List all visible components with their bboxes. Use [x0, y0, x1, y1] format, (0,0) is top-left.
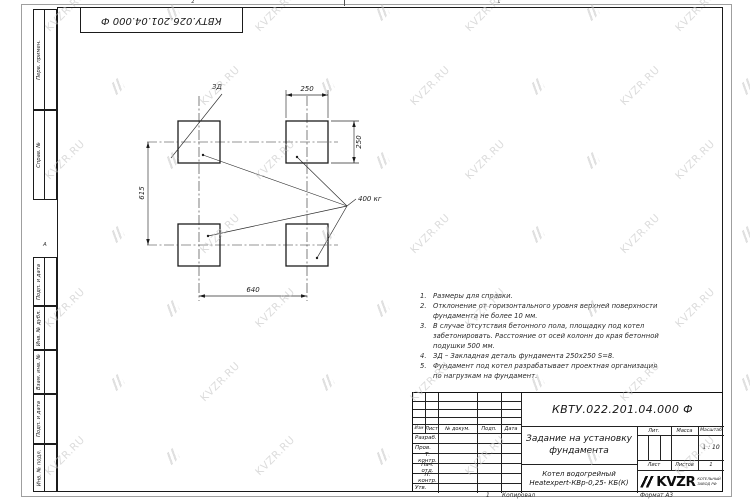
title-block-sig-row: Н. контр.: [413, 473, 440, 483]
dim-top-250: 250: [300, 85, 314, 93]
title-block-col-header: Лист: [425, 424, 438, 433]
note-number: 3.: [420, 321, 433, 351]
footer-copied: Копировал: [502, 493, 535, 499]
note-item: 5.Фундамент под котел разрабатывает прое…: [420, 361, 670, 381]
note-item: 3.В случае отсутствия бетонного пола, пл…: [420, 321, 670, 351]
title-block-doc-number: КВТУ.022.201.04.000 Ф: [521, 393, 724, 426]
scale-header: Масштаб: [698, 426, 724, 435]
note-number: 2.: [420, 301, 433, 321]
drawing-sheet: 2 1 А КВТУ.026.201.04.000 Ф Перв. примен…: [0, 0, 750, 500]
sheets-value: 1: [698, 460, 724, 470]
title-block-line: [660, 435, 661, 460]
title-block-line: [671, 426, 672, 470]
dim-left-615: 615: [138, 186, 146, 200]
title-block-line: [521, 393, 522, 493]
note-text: В случае отсутствия бетонного пола, площ…: [433, 321, 663, 351]
lit-header: Лит.: [637, 426, 671, 435]
scale-value: 1 : 10: [698, 435, 724, 460]
footer-format: Формат А3: [640, 493, 673, 499]
note-number: 4.: [420, 351, 433, 361]
title-block-line: [637, 470, 724, 471]
note-item: 1.Размеры для справки.: [420, 291, 670, 301]
note-item: 4.ЗД – Закладная деталь фундамента 250х2…: [420, 351, 670, 361]
leaders: ЗД 400 кг: [171, 83, 382, 259]
company-logo-cell: KVZR КОТЕЛЬНЫЙ ЗАВОД РФ: [637, 470, 724, 493]
logo-sub-line1: КОТЕЛЬНЫЙ: [697, 477, 720, 481]
title-block-line: [413, 417, 521, 418]
centerlines: [147, 96, 338, 301]
dim-bottom-640: 640: [246, 286, 260, 294]
dimensions: 250 250 615 640: [138, 85, 363, 296]
title-block-line: [698, 426, 699, 470]
title-block-line: [413, 401, 521, 402]
title-block-line: [637, 460, 724, 461]
title-block-sig-row: Утв.: [413, 483, 440, 493]
notes-list: 1.Размеры для справки.2.Отклонение от го…: [420, 291, 670, 381]
title-block-col-header: Подп.: [477, 424, 501, 433]
note-text: Размеры для справки.: [433, 291, 663, 301]
note-item: 2.Отклонение от горизонтального уровня в…: [420, 301, 670, 321]
load-label-400kg: 400 кг: [358, 195, 382, 203]
title-block: КВТУ.022.201.04.000 Ф Задание на установ…: [412, 392, 723, 492]
title-block-col-header: № докум.: [438, 424, 477, 433]
note-number: 1.: [420, 291, 433, 301]
title-block-col-header: Изм: [413, 424, 425, 433]
company-logo: KVZR КОТЕЛЬНЫЙ ЗАВОД РФ: [640, 474, 720, 490]
kvzr-stripes-icon: [640, 476, 654, 488]
title-block-line: [521, 426, 724, 427]
note-text: ЗД – Закладная деталь фундамента 250х250…: [433, 351, 663, 361]
dim-right-250: 250: [355, 135, 363, 149]
note-number: 5.: [420, 361, 433, 381]
note-text: Фундамент под котел разрабатывает проект…: [433, 361, 663, 381]
foundation-pads: [178, 121, 328, 266]
kvzr-logo-subtext: КОТЕЛЬНЫЙ ЗАВОД РФ: [697, 477, 720, 485]
title-block-sig-row: Разраб.: [413, 433, 440, 443]
title-block-line: [521, 464, 637, 465]
title-block-col-header: Дата: [501, 424, 521, 433]
sheet-label: Лист: [637, 460, 671, 470]
drawing-title-line1: Задание на установку: [526, 433, 632, 445]
kvzr-logo-text: KVZR: [656, 474, 695, 490]
logo-sub-line2: ЗАВОД РФ: [697, 482, 720, 486]
product-line2: Heatexpert-КВр-0,25- КБ(К): [529, 479, 628, 488]
title-block-line: [413, 409, 521, 410]
footer-sheet-num: 1: [486, 493, 490, 499]
product-line1: Котел водогрейный: [542, 470, 616, 479]
title-block-line: [637, 435, 724, 436]
mass-header: Масса: [671, 426, 698, 435]
zd-callout-label: ЗД: [212, 83, 222, 91]
drawing-title-line2: фундамента: [549, 445, 609, 457]
note-text: Отклонение от горизонтального уровня вер…: [433, 301, 663, 321]
sheets-label: Листов: [671, 460, 698, 470]
title-block-product: Котел водогрейный Heatexpert-КВр-0,25- К…: [521, 464, 637, 493]
title-block-line: [648, 435, 649, 460]
title-block-drawing-title: Задание на установку фундамента: [521, 426, 637, 464]
